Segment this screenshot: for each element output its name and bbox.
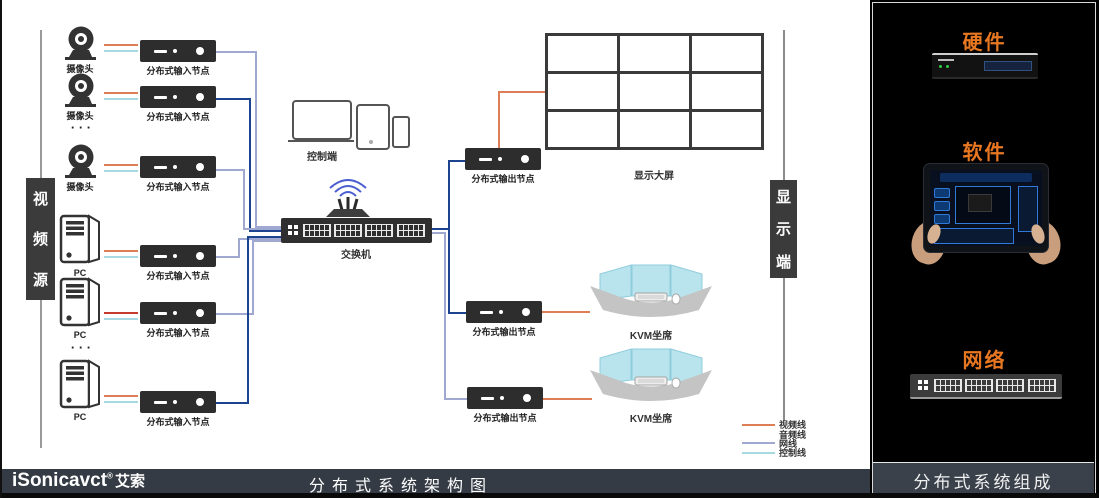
display-wall [545,33,764,150]
device-display [984,61,1032,71]
left-edge [0,0,2,498]
node-port [196,163,204,171]
output-node-device [466,301,542,323]
architecture-diagram-page: 视 频 源 显 示 端 摄像头 摄像头 摄像头 · · · [0,0,1099,498]
network-switch-image [910,374,1062,399]
switch-ports [303,224,331,237]
pc-label: PC [74,412,87,422]
ui-header [940,173,1032,182]
wire-network [255,51,257,226]
wire-control [104,256,138,258]
device-led [946,65,949,68]
legend: 视频线 音频线 网线 控制线 [742,420,806,458]
ui-preview-inner [968,194,992,212]
node-led [500,396,504,400]
legend-swatch-video [742,424,775,426]
kvm-seat-icon [586,342,716,412]
switch-leds [288,225,292,229]
hardware-device-image [932,53,1038,79]
video-source-char: 视 [33,188,48,209]
node-port [523,394,531,402]
ellipsis: · · · [71,120,91,135]
display-wall-cell [548,74,617,109]
wire-network [216,256,238,258]
camera-label: 摄像头 [66,180,93,193]
input-node-device [140,156,216,178]
output-node-device [467,387,543,409]
display-end-label: 显 示 端 [770,180,797,278]
legend-label: 控制线 [779,446,806,459]
node-dash [481,397,494,400]
input-node-device [140,302,216,324]
wifi-router-icon [316,166,380,220]
phone-icon [392,116,410,148]
node-dash [154,96,167,99]
wire-network [238,238,240,258]
main-diagram: 视 频 源 显 示 端 摄像头 摄像头 摄像头 · · · [0,0,870,469]
switch-label: 交换机 [341,246,371,261]
legend-swatch-audio [742,433,775,435]
device-logo [938,59,954,61]
kvm-seat-icon [586,258,716,328]
brand-logo: iSonicavct®艾索 [12,470,145,492]
camera-label: 摄像头 [66,62,93,75]
wire-video [543,398,592,400]
switch-ports [934,379,962,392]
wire-backbone [249,98,251,230]
network-title: 网络 [870,344,1099,373]
kvm-label: KVM坐席 [630,327,672,342]
output-node-label: 分布式输出节点 [472,325,535,338]
video-source-char: 频 [33,228,48,249]
input-node-device [140,40,216,62]
wire-backbone [448,160,465,162]
switch-device [281,218,432,243]
wire-control [104,170,138,172]
video-source-label: 视 频 源 [26,178,55,300]
wire-video [498,91,545,93]
legend-row: 控制线 [742,448,806,457]
wire-control [104,318,138,320]
node-led [498,157,502,161]
node-led [173,400,177,404]
tablet-body [924,164,1048,252]
output-node-device [465,148,541,170]
node-dash [154,312,167,315]
wire-network [243,169,245,228]
input-node-label: 分布式输入节点 [146,415,209,428]
laptop-base [288,140,354,142]
node-dash [154,401,167,404]
switch-ports [365,224,393,237]
camera-icon [58,26,102,62]
node-dash [154,50,167,53]
switch-ports [996,379,1024,392]
wire-network [252,240,281,242]
display-wall-cell [692,112,761,147]
ellipsis: · · · [71,340,91,355]
wire-audio [104,312,138,314]
legend-swatch-control [742,452,775,454]
display-end-char: 示 [776,218,791,239]
device-led [939,65,942,68]
node-led [499,310,503,314]
switch-ports [965,379,993,392]
pc-icon [58,358,104,412]
registered-mark: ® [107,472,113,481]
title-bar: iSonicavct®艾索 分布式系统架构图 [0,469,870,493]
node-dash [154,166,167,169]
legend-swatch-network [742,442,775,444]
ui-button [934,201,950,211]
switch-leds [918,380,922,384]
ui-bottom-row [934,228,1014,244]
input-node-device [140,86,216,108]
display-wall-label: 显示大屏 [634,167,674,182]
wire-backbone [216,402,247,404]
tablet-screen [930,170,1042,246]
node-port [522,308,530,316]
pc-label: PC [74,268,87,278]
camera-icon [58,144,102,180]
output-node-label: 分布式输出节点 [473,411,536,424]
display-wall-cell [692,36,761,71]
kvm-label: KVM坐席 [630,410,672,425]
ui-button [934,188,950,198]
wire-network [216,169,243,171]
node-dash [154,255,167,258]
node-led [173,49,177,53]
brand-name-cn: 艾索 [115,473,145,490]
input-node-label: 分布式输入节点 [146,64,209,77]
wire-video [542,311,590,313]
wire-network [216,51,255,53]
node-port [196,93,204,101]
laptop-icon [292,100,352,140]
control-end-label: 控制端 [307,148,337,163]
output-node-label: 分布式输出节点 [471,172,534,185]
input-node-device [140,245,216,267]
display-wall-cell [548,36,617,71]
display-wall-cell [548,112,617,147]
pc-icon [58,213,104,267]
wire-control [104,401,138,403]
input-node-label: 分布式输入节点 [146,326,209,339]
node-dash [479,158,492,161]
input-node-device [140,391,216,413]
software-tablet-image [920,162,1052,262]
display-wall-cell [620,74,689,109]
wire-video [104,164,138,166]
wire-video [104,44,138,46]
node-port [521,155,529,163]
tablet-icon [356,104,390,150]
switch-ports [1028,379,1056,392]
wire-video [104,250,138,252]
node-led [173,254,177,258]
wire-video [498,91,500,148]
node-port [196,252,204,260]
side-panel: 硬件 软件 [870,0,1099,498]
wire-backbone [448,312,466,314]
wire-backbone [448,160,450,312]
wire-network [252,240,254,315]
wire-control [104,98,138,100]
node-led [173,165,177,169]
display-end-char: 显 [776,186,791,207]
input-node-label: 分布式输入节点 [146,110,209,123]
wire-backbone [216,98,249,100]
pc-icon [58,276,104,330]
wire-video [104,92,138,94]
wire-backbone [247,236,281,238]
wire-network [444,232,446,398]
software-title: 软件 [870,136,1099,165]
ui-button [934,214,950,224]
tablet-dot [369,140,373,144]
switch-ports [397,224,425,237]
camera-icon [58,73,102,109]
brand-name: iSonicavct [12,470,107,491]
node-port [196,398,204,406]
side-panel-footer-title: 分布式系统组成 [914,468,1054,493]
display-wall-cell [692,74,761,109]
node-led [173,311,177,315]
wire-backbone [247,236,249,404]
input-node-label: 分布式输入节点 [146,180,209,193]
bottom-edge [0,493,1099,498]
switch-ports [334,224,362,237]
display-wall-cell [620,112,689,147]
hardware-title: 硬件 [870,26,1099,55]
input-node-label: 分布式输入节点 [146,269,209,282]
node-port [196,309,204,317]
node-dash [480,311,493,314]
display-wall-cell [620,36,689,71]
wire-video [104,395,138,397]
node-port [196,47,204,55]
display-end-char: 端 [776,251,791,272]
wire-network [444,398,467,400]
video-source-char: 源 [33,269,48,290]
node-led [173,95,177,99]
wire-backbone [249,230,281,232]
wire-control [104,50,138,52]
side-panel-footer: 分布式系统组成 [873,462,1094,493]
pc-label: PC [74,330,87,340]
